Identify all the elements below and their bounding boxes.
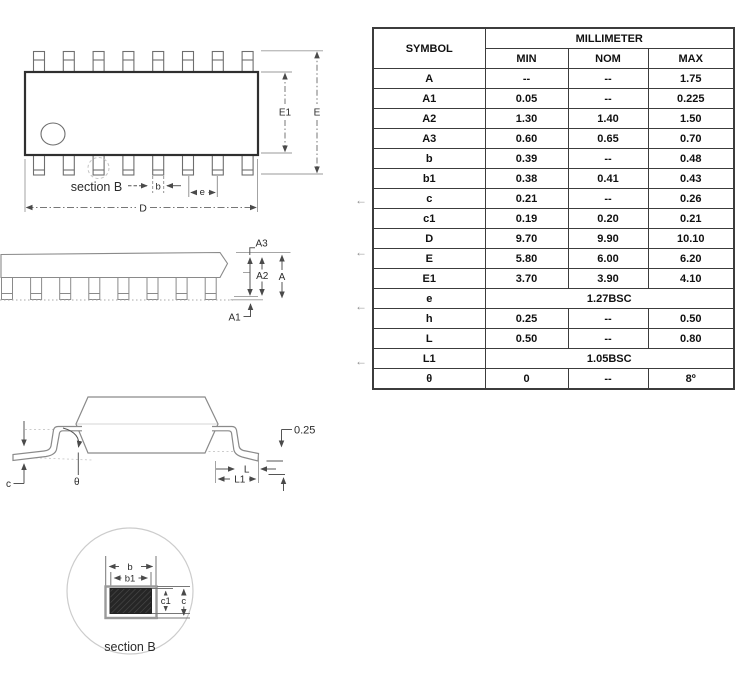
dim-l1-label: L1	[234, 475, 246, 486]
dimension-cell: b	[373, 149, 485, 169]
dimension-cell: A1	[373, 89, 485, 109]
lead-right	[212, 427, 259, 462]
front-view: c θ 0.25 L L1	[6, 397, 315, 491]
dimension-cell: 0.50	[485, 329, 568, 349]
dimension-cell: h	[373, 309, 485, 329]
dimension-cell: 0.20	[568, 209, 648, 229]
dimension-cell: 6.20	[648, 249, 734, 269]
dimension-row: h0.25--0.50	[373, 309, 734, 329]
dim-e-label: e	[200, 187, 205, 198]
dimension-cell: θ	[373, 369, 485, 390]
dimension-cell: 0.50	[648, 309, 734, 329]
dimension-cell: 0.21	[485, 189, 568, 209]
dimension-row: A----1.75	[373, 69, 734, 89]
dimension-row: c0.21--0.26	[373, 189, 734, 209]
dimension-cell: A2	[373, 109, 485, 129]
dimension-cell: 10.10	[648, 229, 734, 249]
change-marker-arrow-icon: ←	[353, 193, 369, 207]
dimension-cell: 0.48	[648, 149, 734, 169]
dim-a1-label: A1	[229, 313, 242, 324]
dimension-cell: --	[568, 369, 648, 390]
dimension-cell: 0.70	[648, 129, 734, 149]
section-dim-c-label: c	[181, 596, 186, 607]
dimension-cell: 5.80	[485, 249, 568, 269]
dimension-cell: --	[568, 189, 648, 209]
dimension-cell: --	[568, 69, 648, 89]
dim-e-overall-label: E	[314, 108, 321, 119]
dimension-cell: --	[568, 329, 648, 349]
dimension-cell: 0.65	[568, 129, 648, 149]
section-b-caption: section B	[104, 640, 155, 654]
dimension-cell: A3	[373, 129, 485, 149]
dimension-cell: 3.90	[568, 269, 648, 289]
dimension-cell: A	[373, 69, 485, 89]
dimension-row: E5.806.006.20	[373, 249, 734, 269]
dimension-cell: --	[568, 89, 648, 109]
dimension-row: L0.50--0.80	[373, 329, 734, 349]
dim-a2-label: A2	[256, 271, 269, 282]
dimension-cell: E	[373, 249, 485, 269]
dim-b-label: b	[156, 182, 161, 193]
section-b-detail: b b1 c1 c section B	[67, 528, 193, 654]
dimension-cell: 0	[485, 369, 568, 390]
dim-e1-label: E1	[279, 108, 292, 119]
dimension-row: θ0--8º	[373, 369, 734, 390]
dimension-cell: 0.39	[485, 149, 568, 169]
nom-header-cell: NOM	[568, 49, 648, 69]
side-view-pins	[2, 278, 217, 300]
dimension-row: E13.703.904.10	[373, 269, 734, 289]
dimension-cell: 9.90	[568, 229, 648, 249]
dimension-table: SYMBOL MILLIMETER MIN NOM MAX A----1.75A…	[372, 27, 735, 390]
max-header-cell: MAX	[648, 49, 734, 69]
package-outline-drawing: section B b e D	[0, 0, 365, 673]
dimension-cell: 0.21	[648, 209, 734, 229]
symbol-header-cell: SYMBOL	[373, 28, 485, 69]
dimension-row: e1.27BSC	[373, 289, 734, 309]
section-dim-c1-label: c1	[161, 596, 171, 607]
dimension-cell: 0.26	[648, 189, 734, 209]
change-marker-arrow-icon: ←	[353, 245, 369, 259]
dimension-cell: 0.43	[648, 169, 734, 189]
dimension-cell: E1	[373, 269, 485, 289]
dimension-row: b10.380.410.43	[373, 169, 734, 189]
min-header-cell: MIN	[485, 49, 568, 69]
dimension-table-body: A----1.75A10.05--0.225A21.301.401.50A30.…	[373, 69, 734, 390]
side-view: A3 A2 A A1	[0, 239, 291, 324]
dimension-cell: c1	[373, 209, 485, 229]
dimension-row: A30.600.650.70	[373, 129, 734, 149]
dimension-cell: D	[373, 229, 485, 249]
ic-body-side-view	[1, 253, 228, 278]
dimension-cell: c	[373, 189, 485, 209]
dimension-row: L11.05BSC	[373, 349, 734, 369]
dimension-cell: 4.10	[648, 269, 734, 289]
dim-a3-label: A3	[256, 239, 269, 250]
dimension-cell: 1.05BSC	[485, 349, 734, 369]
change-marker-arrow-icon: ←	[353, 354, 369, 368]
change-marker-arrow-icon: ←	[353, 299, 369, 313]
dimension-row: A21.301.401.50	[373, 109, 734, 129]
dimension-cell: --	[568, 309, 648, 329]
dimension-cell: 1.30	[485, 109, 568, 129]
dimension-cell: L	[373, 329, 485, 349]
table-header-row: SYMBOL MILLIMETER	[373, 28, 734, 49]
datasheet-page: section B b e D	[0, 0, 738, 673]
dimension-row: D9.709.9010.10	[373, 229, 734, 249]
dimension-cell: e	[373, 289, 485, 309]
dimension-row: b0.39--0.48	[373, 149, 734, 169]
unit-header-cell: MILLIMETER	[485, 28, 734, 49]
dimension-cell: 6.00	[568, 249, 648, 269]
section-b-label: section B	[71, 180, 122, 194]
dimension-cell: 0.80	[648, 329, 734, 349]
dimension-cell: 1.50	[648, 109, 734, 129]
dimension-cell: --	[568, 149, 648, 169]
dim-theta-label: θ	[74, 477, 80, 488]
dimension-cell: --	[485, 69, 568, 89]
dimension-cell: 0.25	[485, 309, 568, 329]
dim-c-label: c	[6, 479, 11, 490]
dim-a-label: A	[279, 272, 286, 283]
top-view: section B b e D	[25, 51, 323, 215]
section-dim-b-label: b	[127, 562, 132, 573]
dimension-cell: 8º	[648, 369, 734, 390]
dimension-cell: 9.70	[485, 229, 568, 249]
dimension-cell: 0.41	[568, 169, 648, 189]
dimension-row: A10.05--0.225	[373, 89, 734, 109]
dimension-cell: 1.75	[648, 69, 734, 89]
dimension-cell: 0.05	[485, 89, 568, 109]
dimension-cell: 0.225	[648, 89, 734, 109]
dimension-cell: L1	[373, 349, 485, 369]
dimension-cell: 1.27BSC	[485, 289, 734, 309]
ic-body-front-view	[76, 397, 218, 453]
dimension-cell: 0.38	[485, 169, 568, 189]
dim-d-label: D	[139, 203, 147, 215]
dimension-cell: 1.40	[568, 109, 648, 129]
dim-gauge-label: 0.25	[294, 425, 315, 437]
dimension-cell: 0.60	[485, 129, 568, 149]
dimension-row: c10.190.200.21	[373, 209, 734, 229]
dimension-cell: 0.19	[485, 209, 568, 229]
dimension-cell: 3.70	[485, 269, 568, 289]
dimension-cell: b1	[373, 169, 485, 189]
lead-cross-section-core	[110, 589, 152, 614]
section-dim-b1-label: b1	[125, 574, 136, 585]
